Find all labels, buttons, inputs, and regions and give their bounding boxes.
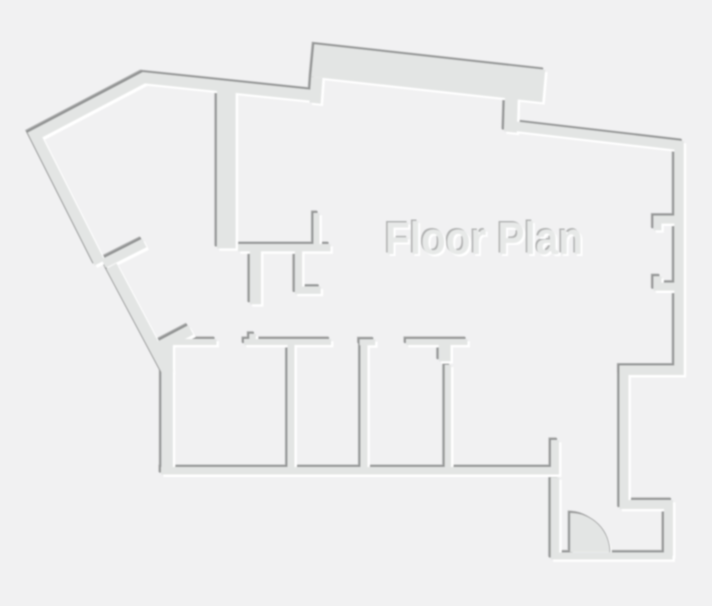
svg-text:Floor Plan: Floor Plan	[385, 213, 583, 264]
